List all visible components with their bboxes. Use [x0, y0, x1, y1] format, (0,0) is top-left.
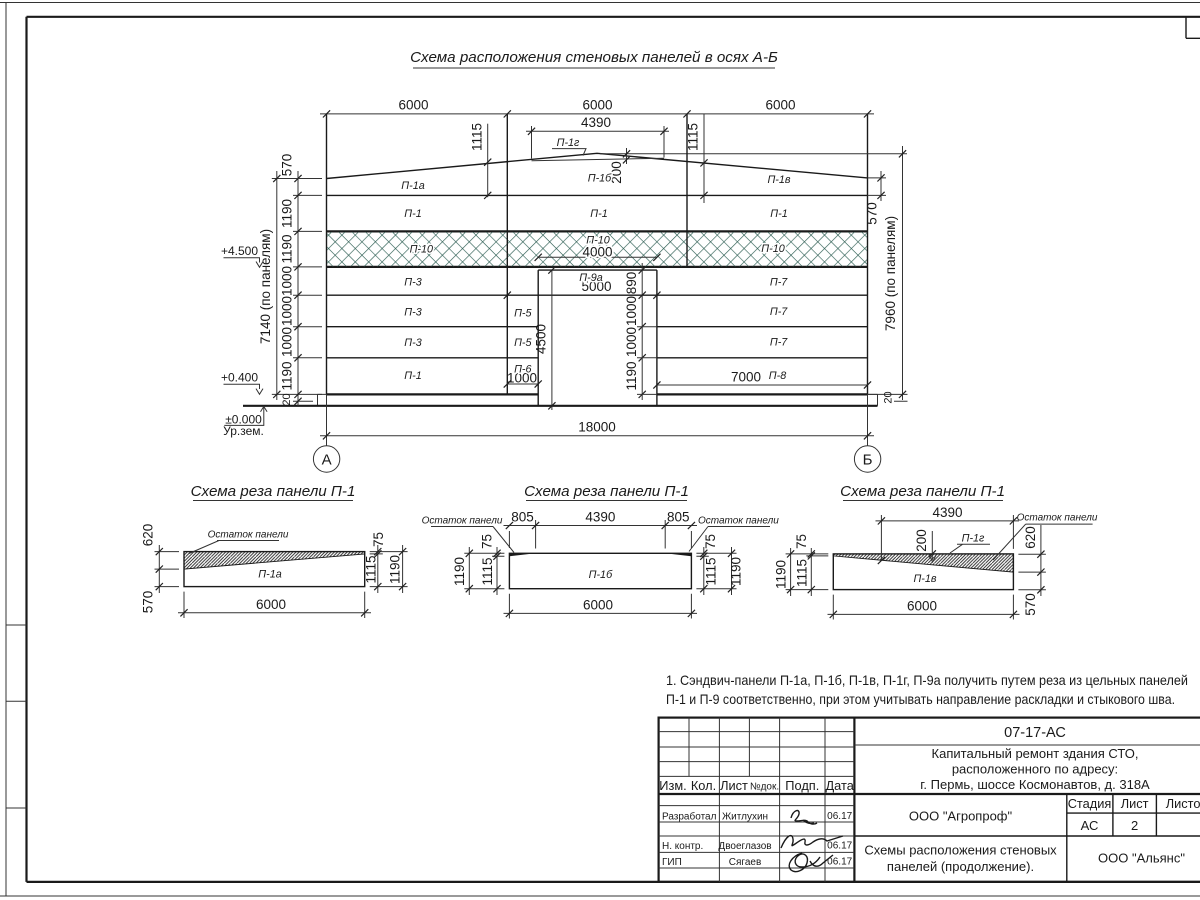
svg-text:Лист: Лист	[1121, 796, 1149, 811]
svg-text:П-1в: П-1в	[913, 573, 936, 585]
svg-text:П-5: П-5	[514, 337, 532, 349]
svg-text:П-1: П-1	[404, 370, 421, 382]
svg-text:1190: 1190	[452, 557, 467, 586]
svg-text:Стадия: Стадия	[1068, 796, 1112, 811]
svg-text:1190: 1190	[624, 361, 639, 390]
svg-text:Ур.зем.: Ур.зем.	[223, 424, 264, 438]
svg-text:2: 2	[1131, 818, 1138, 833]
svg-text:Б: Б	[863, 452, 873, 469]
svg-text:Остаток панели: Остаток панели	[208, 530, 289, 541]
svg-text:1190: 1190	[280, 199, 295, 228]
svg-text:4390: 4390	[932, 505, 962, 520]
svg-text:П-1: П-1	[770, 208, 787, 220]
svg-text:18000: 18000	[578, 420, 616, 435]
svg-text:П-8: П-8	[769, 370, 786, 382]
svg-text:6000: 6000	[583, 597, 613, 612]
svg-text:7140 (по панелям): 7140 (по панелям)	[258, 229, 273, 344]
svg-text:7960 (по панелям): 7960 (по панелям)	[883, 216, 898, 331]
svg-text:расположенного по адресу:: расположенного по адресу:	[952, 762, 1118, 777]
svg-text:1000: 1000	[624, 296, 639, 326]
svg-text:П-10: П-10	[410, 244, 433, 256]
svg-text:07-17-АС: 07-17-АС	[1004, 725, 1066, 741]
svg-text:75: 75	[480, 534, 495, 549]
svg-text:4390: 4390	[581, 115, 611, 130]
svg-text:П-10: П-10	[761, 243, 784, 255]
svg-text:П-9а: П-9а	[579, 272, 602, 284]
svg-text:Капитальный ремонт здания СТО,: Капитальный ремонт здания СТО,	[932, 746, 1139, 761]
svg-text:Житлухин: Житлухин	[722, 812, 768, 823]
svg-text:06.17: 06.17	[827, 857, 852, 868]
svg-text:Схема реза панели П-1: Схема реза панели П-1	[840, 483, 1005, 500]
svg-text:6000: 6000	[907, 598, 937, 613]
svg-text:Двоеглазов: Двоеглазов	[718, 841, 771, 852]
svg-text:П-1а: П-1а	[258, 569, 281, 581]
svg-text:620: 620	[141, 524, 156, 547]
svg-text:6000: 6000	[765, 98, 795, 113]
svg-text:4390: 4390	[585, 510, 615, 525]
svg-text:805: 805	[511, 510, 534, 525]
svg-text:П-7: П-7	[770, 306, 788, 318]
svg-text:1115: 1115	[364, 555, 379, 583]
svg-text:75: 75	[703, 534, 718, 549]
svg-text:г. Пермь, шоссе Космонавтов, д: г. Пермь, шоссе Космонавтов, д. 318А	[920, 777, 1150, 792]
svg-text:панелей (продолжение).: панелей (продолжение).	[887, 859, 1034, 874]
svg-text:620: 620	[1023, 526, 1038, 549]
svg-text:1190: 1190	[729, 557, 744, 586]
svg-text:Схема реза панели П-1: Схема реза панели П-1	[524, 483, 689, 500]
svg-text:А: А	[322, 452, 332, 469]
svg-text:06.17: 06.17	[827, 811, 852, 822]
svg-text:П-3: П-3	[404, 307, 421, 319]
svg-text:П-7: П-7	[770, 277, 788, 289]
svg-text:№док.: №док.	[750, 782, 779, 793]
svg-text:П-5: П-5	[514, 308, 532, 320]
svg-text:6000: 6000	[582, 98, 612, 113]
svg-text:1115: 1115	[470, 123, 485, 151]
svg-text:200: 200	[914, 529, 929, 552]
svg-text:П-1 и П-9 соответственно, при: П-1 и П-9 соответственно, при этом учиты…	[666, 691, 1175, 707]
svg-text:Разработал: Разработал	[662, 811, 717, 823]
svg-text:П-1г: П-1г	[557, 137, 580, 149]
svg-text:1000: 1000	[280, 327, 295, 357]
svg-text:Остаток панели: Остаток панели	[698, 516, 779, 527]
svg-text:+4.500: +4.500	[221, 244, 258, 258]
svg-text:1190: 1190	[280, 234, 295, 263]
svg-text:ООО "Агропроф": ООО "Агропроф"	[909, 809, 1013, 824]
svg-text:75: 75	[371, 532, 386, 547]
svg-text:6000: 6000	[398, 98, 428, 113]
svg-text:7000: 7000	[731, 370, 761, 385]
svg-text:Схема расположения стеновых па: Схема расположения стеновых панелей в ос…	[410, 49, 778, 66]
svg-text:4000: 4000	[582, 245, 612, 260]
svg-text:Остаток панели: Остаток панели	[422, 516, 503, 527]
svg-text:Сягаев: Сягаев	[729, 857, 762, 868]
svg-text:П-1: П-1	[404, 208, 421, 220]
svg-text:1115: 1115	[704, 557, 719, 585]
svg-text:1000: 1000	[280, 266, 295, 296]
svg-text:1115: 1115	[480, 557, 495, 585]
svg-text:П-3: П-3	[404, 337, 421, 349]
svg-text:П-1: П-1	[590, 208, 607, 220]
svg-text:П-1б: П-1б	[588, 173, 612, 185]
svg-text:Изм.: Изм.	[659, 778, 686, 793]
svg-text:1115: 1115	[686, 123, 701, 151]
svg-text:АС: АС	[1081, 818, 1099, 833]
svg-text:20: 20	[883, 391, 895, 403]
svg-text:805: 805	[667, 510, 690, 525]
svg-text:570: 570	[1023, 593, 1038, 616]
svg-text:П-1б: П-1б	[589, 569, 613, 581]
svg-text:П-10: П-10	[586, 235, 609, 247]
svg-text:1000: 1000	[624, 327, 639, 357]
svg-text:200: 200	[609, 161, 624, 184]
svg-text:П-3: П-3	[404, 277, 421, 289]
svg-text:20: 20	[281, 393, 293, 405]
svg-text:1000: 1000	[280, 296, 295, 326]
svg-text:+0.400: +0.400	[221, 371, 258, 385]
svg-text:06.17: 06.17	[827, 841, 852, 852]
svg-text:570: 570	[280, 154, 295, 177]
svg-text:1190: 1190	[280, 361, 295, 390]
svg-text:Дата: Дата	[826, 778, 855, 793]
svg-text:4500: 4500	[534, 324, 549, 354]
svg-text:75: 75	[794, 534, 809, 549]
svg-text:Подп.: Подп.	[785, 778, 819, 793]
svg-text:1190: 1190	[774, 560, 789, 589]
svg-text:ООО "Альянс": ООО "Альянс"	[1098, 851, 1185, 866]
svg-text:П-6: П-6	[514, 364, 531, 376]
svg-text:Н. контр.: Н. контр.	[662, 841, 703, 852]
svg-text:1190: 1190	[388, 555, 403, 584]
svg-text:570: 570	[865, 202, 880, 225]
svg-text:Листов: Листов	[1166, 796, 1200, 811]
svg-text:Остаток панели: Остаток панели	[1017, 513, 1098, 524]
svg-text:Схемы расположения стеновых: Схемы расположения стеновых	[864, 843, 1057, 858]
svg-text:Лист: Лист	[720, 778, 748, 793]
svg-text:Схема реза панели П-1: Схема реза панели П-1	[191, 483, 356, 500]
svg-text:П-1в: П-1в	[767, 174, 790, 186]
svg-text:1. Сэндвич-панели П-1а, П-1б,: 1. Сэндвич-панели П-1а, П-1б, П-1в, П-1г…	[666, 672, 1188, 688]
svg-text:П-1г: П-1г	[962, 533, 985, 545]
svg-text:1115: 1115	[795, 559, 810, 587]
svg-text:890: 890	[624, 272, 639, 295]
svg-text:570: 570	[141, 591, 156, 614]
svg-text:П-7: П-7	[770, 337, 788, 349]
svg-text:6000: 6000	[256, 597, 286, 612]
svg-text:Кол.: Кол.	[691, 778, 716, 793]
svg-text:ГИП: ГИП	[662, 857, 682, 868]
svg-text:П-1а: П-1а	[401, 180, 424, 192]
